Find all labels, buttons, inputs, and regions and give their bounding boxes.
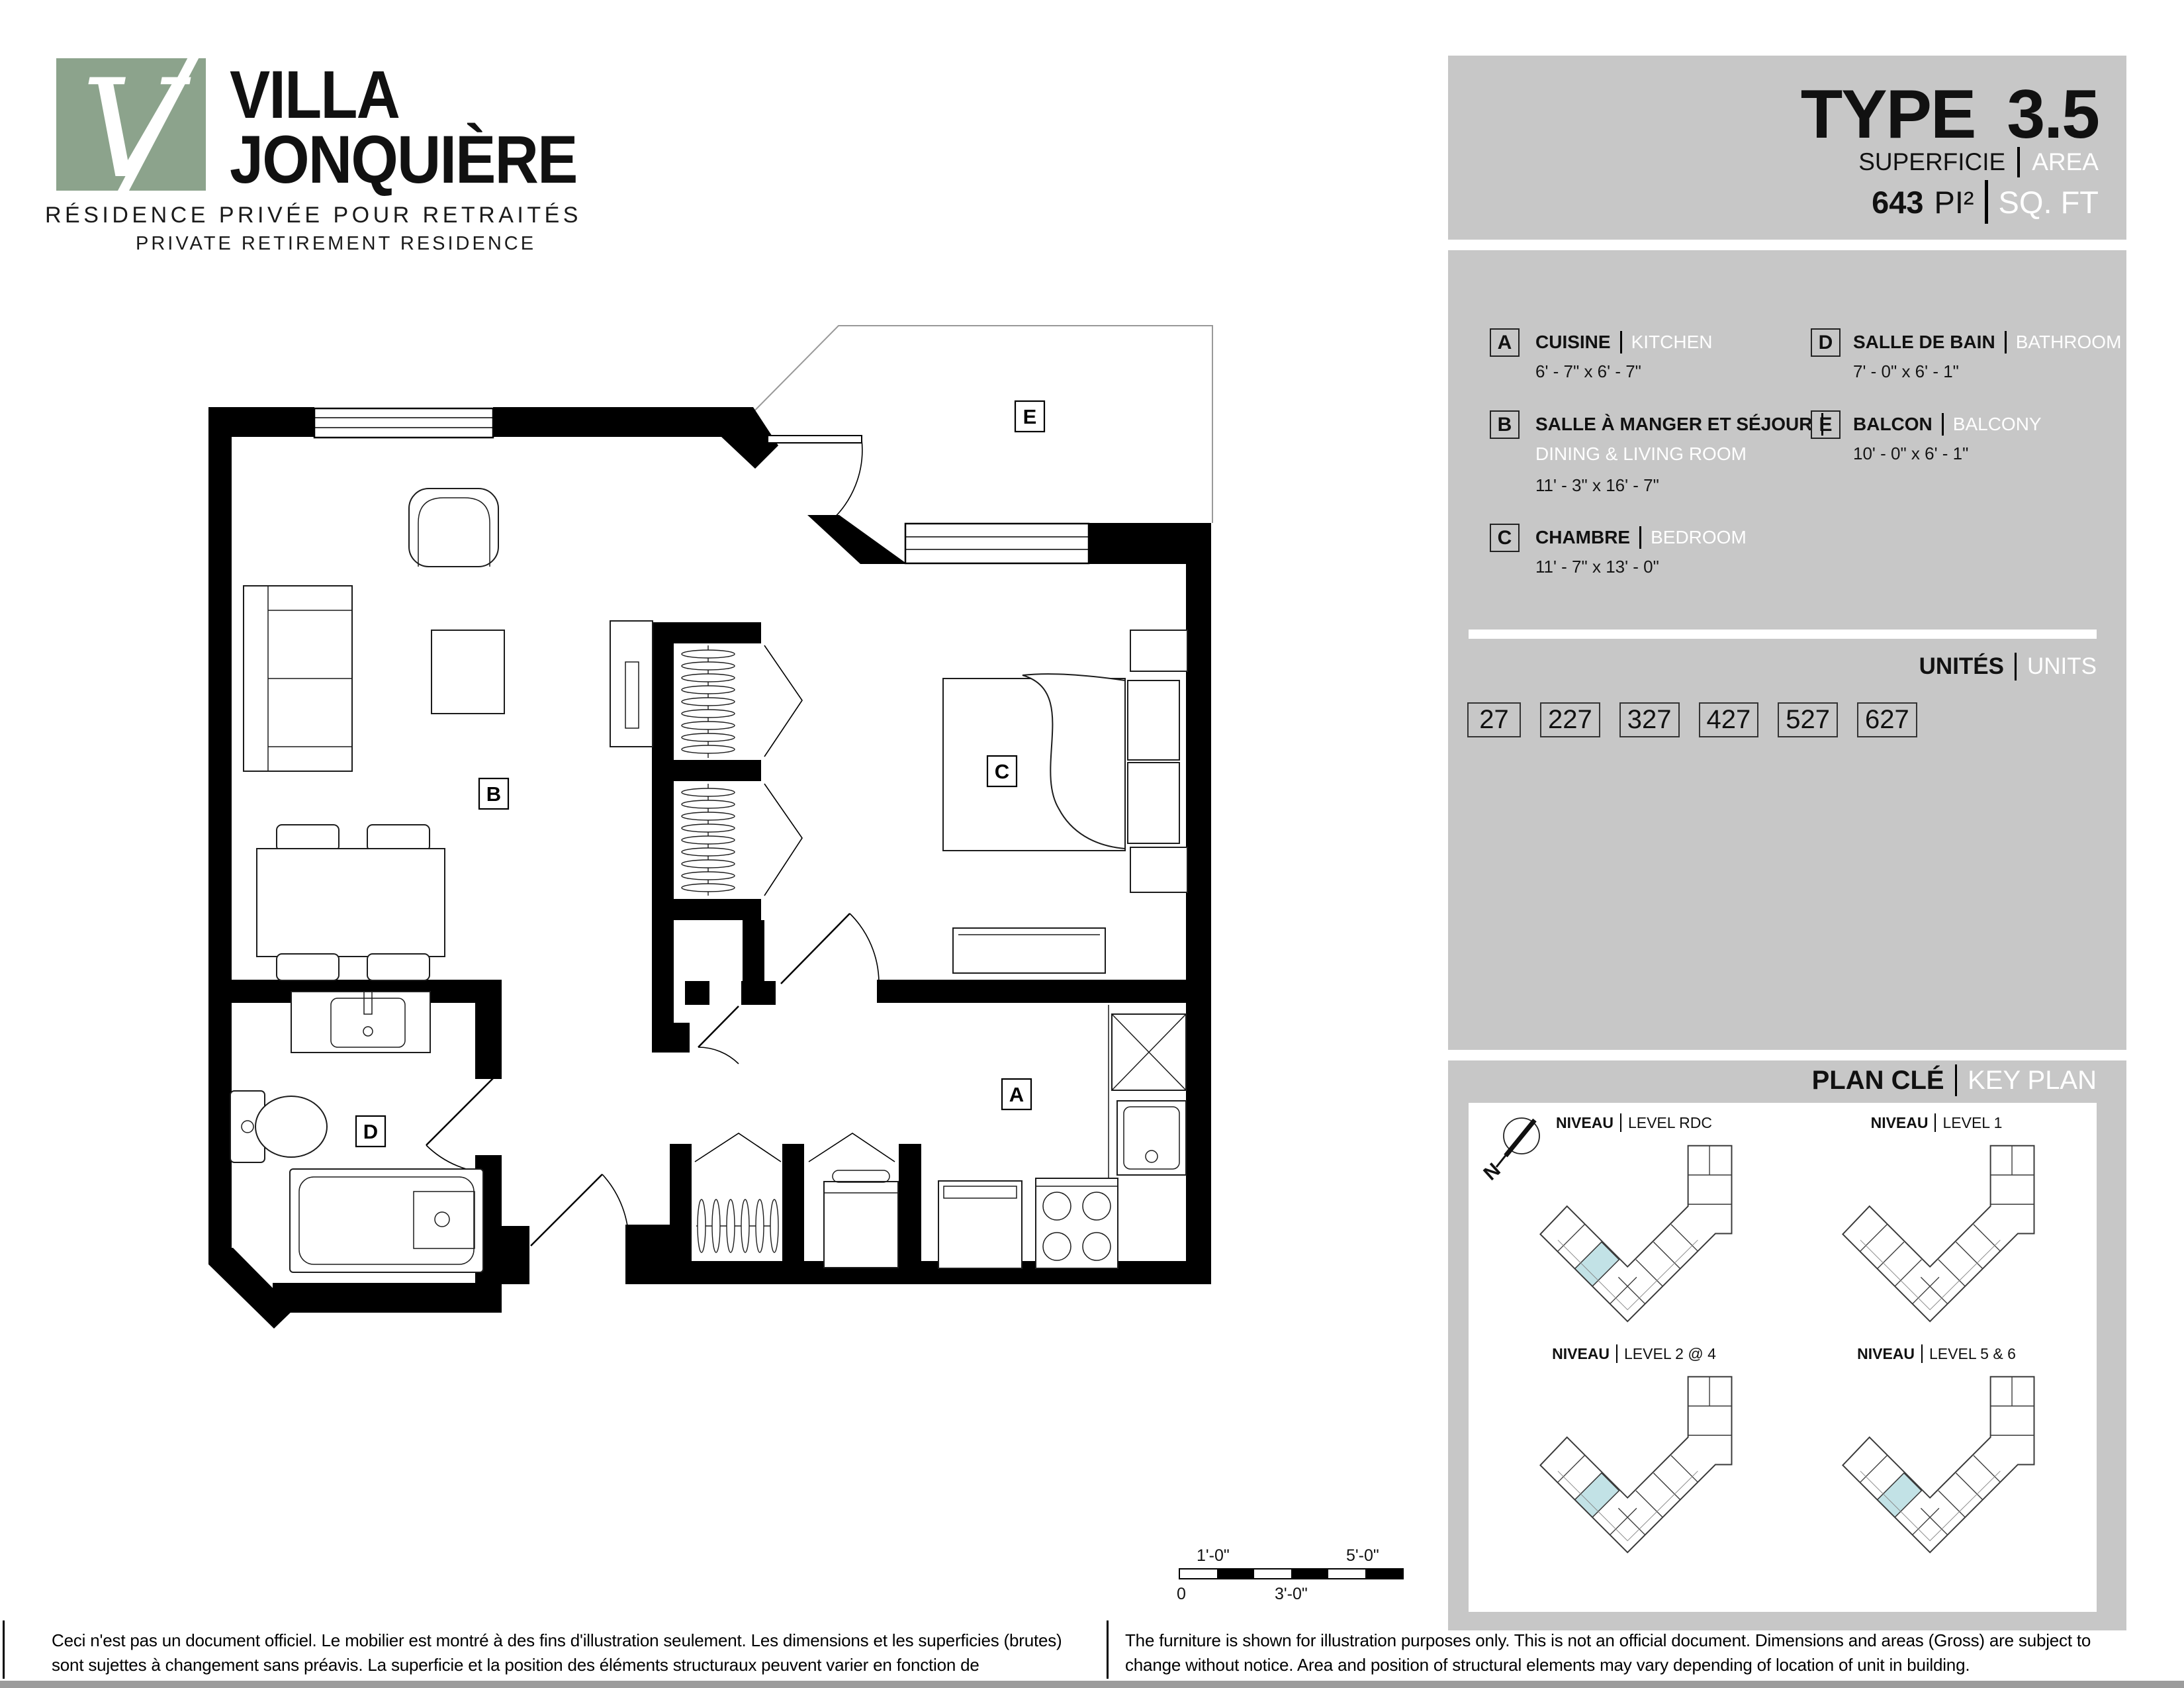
window-living-room — [314, 408, 493, 438]
scale-0: 0 — [1177, 1585, 1186, 1604]
logo-name-line1: VILLA — [230, 62, 563, 127]
type-value: 3.5 — [2007, 75, 2099, 154]
logo-subtitle-fr: RÉSIDENCE PRIVÉE POUR RETRAITÉS — [45, 203, 582, 228]
keyplan-level-5-6: NIVEAULEVEL 5 & 6 — [1794, 1344, 2079, 1562]
superficie-label: SUPERFICIE — [1858, 148, 2005, 176]
plan-cle-label: PLAN CLÉ — [1812, 1066, 1944, 1096]
units-heading: UNITÉS UNITS — [1919, 653, 2097, 680]
hall-door — [698, 1006, 739, 1064]
footer-divider-middle — [1107, 1620, 1109, 1679]
label-kitchen: A — [1009, 1083, 1024, 1106]
scale-1ft: 1'-0" — [1197, 1546, 1230, 1566]
unit-numbers-row: 27 227 327 427 527 627 — [1467, 702, 1917, 737]
keyplan-level-rdc: NIVEAULEVEL RDC — [1492, 1113, 1776, 1331]
legend-dims-kitchen: 6' - 7" x 6' - 7" — [1535, 361, 1641, 382]
entry-door — [531, 1174, 629, 1246]
label-bathroom: D — [363, 1120, 378, 1143]
window-bedroom — [905, 524, 1089, 563]
legend-title-bathroom: SALLE DE BAINBATHROOM — [1853, 331, 2121, 353]
keyplan-heading: PLAN CLÉ KEY PLAN — [1812, 1064, 2097, 1096]
units-label: UNITS — [2027, 653, 2097, 680]
legend-box-d: D — [1811, 328, 1841, 357]
footer-divider-left — [3, 1620, 5, 1679]
logo-subtitle-en: PRIVATE RETIREMENT RESIDENCE — [136, 233, 536, 255]
unit-floorplan-drawing: E B C D A — [199, 305, 1231, 1496]
keyplan-panel: PLAN CLÉ KEY PLAN N — [1448, 1060, 2126, 1630]
disclaimer-french: Ceci n'est pas un document officiel. Le … — [52, 1628, 1064, 1688]
balcony-outline — [736, 326, 1212, 523]
villa-jonquiere-logo-icon: V — [56, 58, 215, 224]
disclaimer-english: The furniture is shown for illustration … — [1125, 1628, 2148, 1677]
label-bedroom: C — [995, 760, 1009, 783]
bottom-bar — [0, 1681, 2184, 1688]
balcony-door — [768, 436, 862, 523]
legend-title-balcony: BALCONBALCONY — [1853, 413, 2042, 436]
logo-name-line2: JONQUIÈRE — [230, 127, 563, 192]
area-value: 643 — [1872, 184, 1923, 220]
area-label-row: SUPERFICIE AREA — [1858, 147, 2099, 177]
legend-dims-living: 11' - 3" x 16' - 7" — [1535, 475, 1659, 496]
legend-title-bedroom: CHAMBREBEDROOM — [1535, 526, 1747, 549]
bedroom-furniture — [943, 630, 1187, 973]
label-balcony: E — [1023, 405, 1037, 428]
legend-title-living: SALLE À MANGER ET SÉJOUR — [1535, 413, 1823, 436]
legend-title-living-en: DINING & LIVING ROOM — [1535, 444, 1747, 465]
legend-box-e: E — [1811, 410, 1841, 439]
unites-label: UNITÉS — [1919, 653, 2004, 680]
highlighted-unit — [1575, 1473, 1619, 1517]
keyplan-level-2-4: NIVEAULEVEL 2 @ 4 — [1492, 1344, 1776, 1562]
unit-number: 627 — [1857, 702, 1917, 737]
unit-number: 427 — [1699, 702, 1759, 737]
unit-number: 227 — [1540, 702, 1600, 737]
legend-dims-bathroom: 7' - 0" x 6' - 1" — [1853, 361, 1959, 382]
legend-box-c: C — [1490, 524, 1520, 552]
scale-5ft: 5'-0" — [1346, 1546, 1379, 1566]
legend-dims-bedroom: 11' - 7" x 13' - 0" — [1535, 557, 1659, 577]
bedroom-door — [781, 914, 879, 984]
unit-type-heading: TYPE 3.5 — [1801, 75, 2099, 154]
type-area-panel: TYPE 3.5 SUPERFICIE AREA 643 PI² SQ. FT — [1448, 56, 2126, 240]
logo-v-glyph: V — [81, 58, 191, 209]
keyplan-level-1: NIVEAULEVEL 1 — [1794, 1113, 2079, 1331]
scale-bar: 1'-0" 5'-0" 0 3'-0" — [1177, 1546, 1406, 1607]
scale-3ft: 3'-0" — [1275, 1585, 1308, 1604]
legend-box-b: B — [1490, 410, 1520, 439]
keyplan-inset: N — [1469, 1103, 2097, 1612]
living-room-furniture — [244, 489, 653, 980]
units-separator-bar — [1469, 630, 2097, 639]
floorplan-sheet: V VILLA JONQUIÈRE RÉSIDENCE PRIVÉE POUR … — [0, 0, 2184, 1688]
highlighted-unit — [1878, 1473, 1922, 1517]
label-living: B — [486, 782, 501, 806]
area-label: AREA — [2032, 148, 2099, 176]
unit-number: 527 — [1778, 702, 1838, 737]
scale-bar-graphic — [1179, 1568, 1404, 1579]
area-unit-fr: PI² — [1934, 184, 1974, 220]
kitchen-appliances — [824, 1005, 1186, 1268]
key-plan-label: KEY PLAN — [1968, 1066, 2097, 1096]
unit-number: 27 — [1467, 702, 1521, 737]
area-unit-en: SQ. FT — [1999, 184, 2099, 220]
highlighted-unit — [1575, 1242, 1619, 1286]
unit-number: 327 — [1619, 702, 1680, 737]
area-value-row: 643 PI² SQ. FT — [1872, 180, 2099, 224]
legend-panel: A CUISINEKITCHEN 6' - 7" x 6' - 7" B SAL… — [1448, 250, 2126, 1050]
type-label: TYPE — [1801, 75, 1976, 154]
legend-dims-balcony: 10' - 0" x 6' - 1" — [1853, 444, 1968, 464]
legend-box-a: A — [1490, 328, 1520, 357]
legend-title-kitchen: CUISINEKITCHEN — [1535, 331, 1712, 353]
